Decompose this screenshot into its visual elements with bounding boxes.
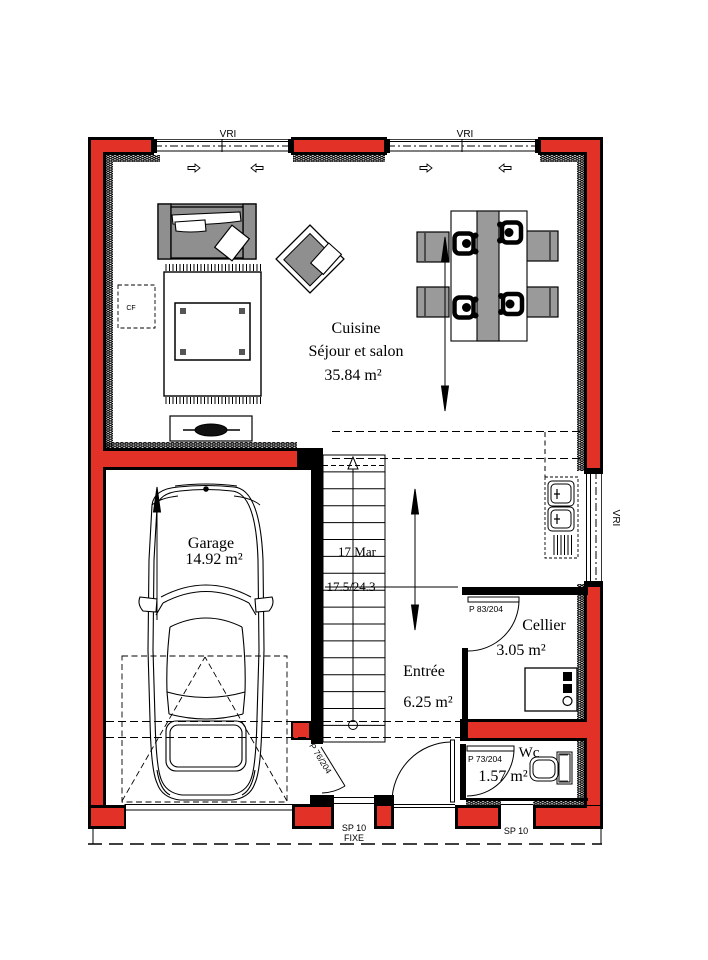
svg-text:14.92 m²: 14.92 m² <box>185 551 242 568</box>
svg-text:SP 10: SP 10 <box>342 823 366 833</box>
svg-text:FIXE: FIXE <box>344 833 364 843</box>
svg-text:Wc: Wc <box>519 745 540 761</box>
svg-text:VRI: VRI <box>457 129 474 140</box>
svg-text:P 73/204: P 73/204 <box>468 754 502 764</box>
svg-text:17 Mar: 17 Mar <box>338 544 377 559</box>
svg-text:3.05 m²: 3.05 m² <box>496 642 545 659</box>
svg-text:CF: CF <box>126 305 135 312</box>
svg-text:17.5/24.3: 17.5/24.3 <box>326 579 375 594</box>
svg-text:Cellier: Cellier <box>522 617 566 634</box>
svg-text:Garage: Garage <box>188 535 234 552</box>
svg-text:Séjour et salon: Séjour et salon <box>308 343 403 360</box>
svg-text:SP 10: SP 10 <box>504 826 528 836</box>
svg-text:35.84 m²: 35.84 m² <box>324 367 381 384</box>
svg-text:Entrée: Entrée <box>403 663 445 680</box>
svg-text:Cuisine: Cuisine <box>332 320 381 337</box>
svg-text:VRI: VRI <box>610 510 621 527</box>
svg-text:VRI: VRI <box>220 129 237 140</box>
svg-text:6.25 m²: 6.25 m² <box>403 694 452 711</box>
svg-text:P 83/204: P 83/204 <box>469 604 503 614</box>
svg-text:1.57 m²: 1.57 m² <box>478 768 527 785</box>
